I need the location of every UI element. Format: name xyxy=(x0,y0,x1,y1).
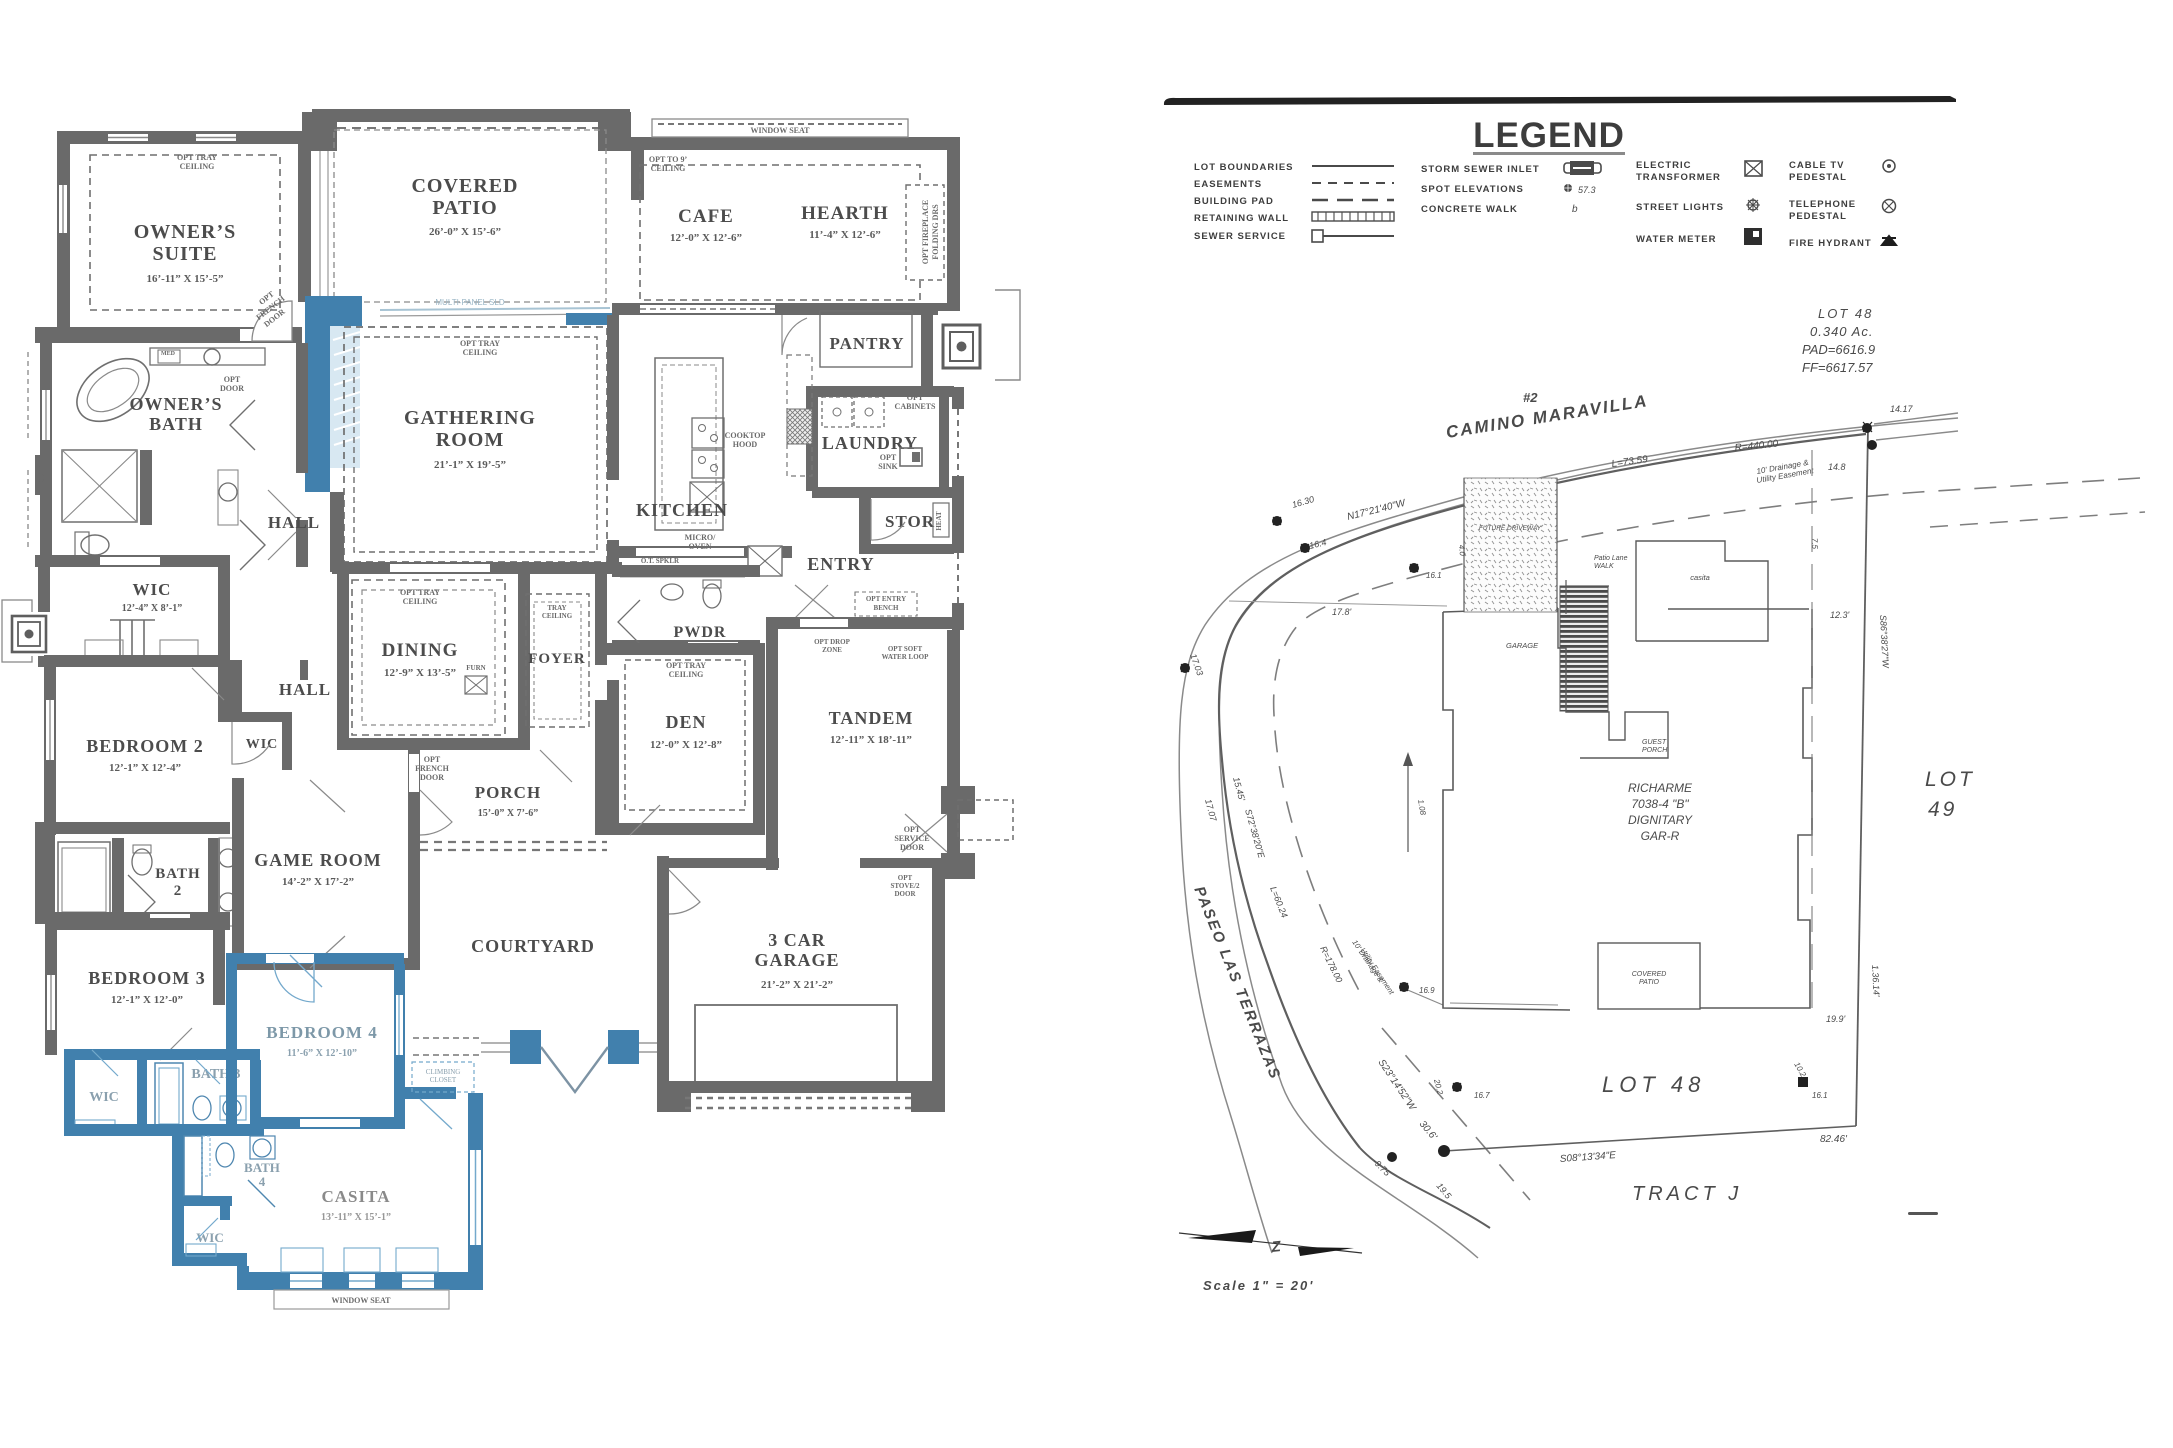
svg-text:BEDROOM 2: BEDROOM 2 xyxy=(86,736,204,756)
svg-text:12’-1” X 12’-4”: 12’-1” X 12’-4” xyxy=(109,762,181,774)
svg-text:CEILING: CEILING xyxy=(542,612,573,620)
svg-text:26’-0” X 15’-6”: 26’-0” X 15’-6” xyxy=(429,226,501,238)
svg-text:12’-4” X 8’-1”: 12’-4” X 8’-1” xyxy=(122,603,183,614)
svg-text:COVERED: COVERED xyxy=(1632,971,1667,978)
svg-text:15’-0” X 7’-6”: 15’-0” X 7’-6” xyxy=(478,808,539,819)
svg-text:OPT TRAY: OPT TRAY xyxy=(400,588,440,597)
svg-text:PWDR: PWDR xyxy=(674,624,727,641)
svg-text:17.8': 17.8' xyxy=(1332,607,1352,617)
svg-text:BEDROOM 4: BEDROOM 4 xyxy=(266,1023,377,1042)
svg-text:WATER LOOP: WATER LOOP xyxy=(882,653,929,661)
svg-text:CAMINO MARAVILLA: CAMINO MARAVILLA xyxy=(1445,391,1650,442)
svg-text:FIRE HYDRANT: FIRE HYDRANT xyxy=(1789,238,1872,249)
svg-text:21’-2” X 21’-2”: 21’-2” X 21’-2” xyxy=(761,979,833,991)
svg-text:Patio Lane: Patio Lane xyxy=(1594,555,1628,562)
svg-text:EASEMENTS: EASEMENTS xyxy=(1194,179,1262,190)
svg-text:DOOR: DOOR xyxy=(900,843,924,852)
svg-text:CAFE: CAFE xyxy=(678,206,734,227)
svg-text:OPT: OPT xyxy=(224,375,241,384)
svg-text:12’-1” X 12’-0”: 12’-1” X 12’-0” xyxy=(111,994,183,1006)
svg-text:PORCH: PORCH xyxy=(475,783,541,802)
svg-text:OWNER’S: OWNER’S xyxy=(134,221,237,243)
svg-text:CABLE TV: CABLE TV xyxy=(1789,160,1845,171)
svg-text:GARAGE: GARAGE xyxy=(754,950,839,970)
svg-text:17.03: 17.03 xyxy=(1188,652,1205,677)
svg-text:COOKTOP: COOKTOP xyxy=(725,431,766,440)
svg-text:HEARTH: HEARTH xyxy=(801,203,889,224)
svg-text:TRANSFORMER: TRANSFORMER xyxy=(1636,172,1721,183)
svg-text:FF=6617.57: FF=6617.57 xyxy=(1802,360,1873,375)
svg-text:COURTYARD: COURTYARD xyxy=(471,936,595,956)
svg-text:TANDEM: TANDEM xyxy=(829,708,914,728)
svg-text:SEAT: SEAT xyxy=(38,466,46,484)
svg-text:13’-11” X 15’-1”: 13’-11” X 15’-1” xyxy=(321,1212,391,1223)
svg-text:GARAGE: GARAGE xyxy=(1506,641,1539,650)
svg-text:R=440.00: R=440.00 xyxy=(1734,438,1779,454)
svg-text:FUTURE DRIVEWAY: FUTURE DRIVEWAY xyxy=(1479,525,1542,532)
svg-text:O.T. SPKLR: O.T. SPKLR xyxy=(641,557,680,565)
svg-text:LOT 48: LOT 48 xyxy=(1818,306,1873,321)
svg-text:CONCRETE WALK: CONCRETE WALK xyxy=(1421,204,1518,215)
svg-text:PORCH: PORCH xyxy=(1642,747,1668,754)
svg-text:BEDROOM 3: BEDROOM 3 xyxy=(88,968,206,988)
svg-text:N17°21'40"W: N17°21'40"W xyxy=(1346,497,1408,522)
svg-text:CASITA: CASITA xyxy=(322,1187,391,1206)
svg-text:DIGNITARY: DIGNITARY xyxy=(1628,813,1693,827)
svg-text:STREET LIGHTS: STREET LIGHTS xyxy=(1636,202,1724,213)
svg-text:WIC: WIC xyxy=(133,580,172,599)
svg-text:CEILING: CEILING xyxy=(651,164,686,173)
svg-text:BATH: BATH xyxy=(149,414,203,434)
svg-text:21’-1” X 19’-5”: 21’-1” X 19’-5” xyxy=(434,459,506,471)
svg-text:STOR: STOR xyxy=(885,512,935,531)
svg-text:GAR-R: GAR-R xyxy=(1641,829,1680,843)
svg-text:OPT SOFT: OPT SOFT xyxy=(888,645,923,653)
svg-text:Utility Easement: Utility Easement xyxy=(1358,946,1396,997)
svg-text:Z: Z xyxy=(1270,1238,1283,1256)
svg-text:19.9': 19.9' xyxy=(1826,1014,1846,1024)
svg-text:S72°38'20"E: S72°38'20"E xyxy=(1243,808,1267,860)
svg-text:15.45': 15.45' xyxy=(1231,776,1247,802)
svg-text:12’-0” X 12’-8”: 12’-0” X 12’-8” xyxy=(650,739,722,751)
svg-text:GATHERING: GATHERING xyxy=(404,407,536,429)
svg-text:CEILING: CEILING xyxy=(463,348,498,357)
svg-text:SINK: SINK xyxy=(878,462,898,471)
svg-text:BATH: BATH xyxy=(155,866,200,882)
svg-text:MULTI-PANEL SLD: MULTI-PANEL SLD xyxy=(435,298,504,307)
svg-text:OPT TRAY: OPT TRAY xyxy=(460,339,500,348)
svg-text:WIC: WIC xyxy=(246,737,279,752)
svg-text:16.30: 16.30 xyxy=(1291,494,1315,510)
svg-text:1.08: 1.08 xyxy=(1416,799,1428,816)
svg-text:7038-4 "B": 7038-4 "B" xyxy=(1631,797,1689,811)
svg-text:12’-11” X 18’-11”: 12’-11” X 18’-11” xyxy=(830,734,912,746)
svg-text:SERVICE: SERVICE xyxy=(894,834,929,843)
svg-text:GUEST: GUEST xyxy=(1642,739,1667,746)
svg-text:SEWER SERVICE: SEWER SERVICE xyxy=(1194,231,1286,242)
svg-text:16.4: 16.4 xyxy=(1308,537,1327,551)
svg-text:DOOR: DOOR xyxy=(220,384,244,393)
svg-text:S23°14'52"W: S23°14'52"W xyxy=(1376,1058,1419,1114)
svg-text:S86°38'27"W: S86°38'27"W xyxy=(1878,615,1891,670)
svg-text:OPT: OPT xyxy=(880,453,897,462)
svg-text:OPT TRAY: OPT TRAY xyxy=(666,661,706,670)
svg-text:CEILING: CEILING xyxy=(403,597,438,606)
svg-text:OPT DROP: OPT DROP xyxy=(814,638,851,646)
svg-text:BUILDING PAD: BUILDING PAD xyxy=(1194,196,1274,207)
svg-text:WIC: WIC xyxy=(196,1230,223,1245)
svg-text:OVEN: OVEN xyxy=(688,542,711,551)
svg-text:RETAINING WALL: RETAINING WALL xyxy=(1194,213,1289,224)
svg-text:0.340 Ac.: 0.340 Ac. xyxy=(1810,324,1873,339)
svg-text:20.2: 20.2 xyxy=(1432,1077,1445,1096)
svg-text:CEILING: CEILING xyxy=(669,670,704,679)
svg-text:CEILING: CEILING xyxy=(180,162,215,171)
svg-text:LOT BOUNDARIES: LOT BOUNDARIES xyxy=(1194,162,1294,173)
svg-text:2: 2 xyxy=(174,883,183,899)
svg-text:TRAY: TRAY xyxy=(547,604,566,612)
svg-text:WINDOW SEAT: WINDOW SEAT xyxy=(331,1296,391,1305)
svg-text:ENTRY: ENTRY xyxy=(807,554,874,574)
svg-text:WATER METER: WATER METER xyxy=(1636,234,1717,245)
svg-text:HEAT: HEAT xyxy=(935,511,943,531)
svg-text:TRACT J: TRACT J xyxy=(1632,1183,1742,1205)
svg-text:PATIO: PATIO xyxy=(432,197,497,219)
svg-text:CLOSET: CLOSET xyxy=(430,1076,457,1084)
svg-text:16.7: 16.7 xyxy=(1474,1091,1490,1100)
svg-text:SPOT ELEVATIONS: SPOT ELEVATIONS xyxy=(1421,184,1524,195)
svg-text:49: 49 xyxy=(1928,798,1957,821)
svg-text:HALL: HALL xyxy=(279,680,331,699)
svg-text:OPT ENTRY: OPT ENTRY xyxy=(866,595,906,603)
svg-text:FOLDING DRS: FOLDING DRS xyxy=(931,204,940,260)
svg-text:OPT: OPT xyxy=(424,755,441,764)
svg-text:OPT TRAY: OPT TRAY xyxy=(177,153,217,162)
svg-text:ZONE: ZONE xyxy=(822,646,842,654)
svg-text:#2: #2 xyxy=(1523,390,1538,405)
svg-text:KITCHEN: KITCHEN xyxy=(636,500,728,520)
svg-text:R=178.00: R=178.00 xyxy=(1318,944,1344,984)
svg-text:WALK: WALK xyxy=(1594,563,1614,570)
svg-text:14’-2” X 17’-2”: 14’-2” X 17’-2” xyxy=(282,876,354,888)
svg-text:HOOD: HOOD xyxy=(733,440,758,449)
svg-text:OPT: OPT xyxy=(898,874,913,882)
svg-text:4: 4 xyxy=(259,1174,266,1189)
svg-text:PEDESTAL: PEDESTAL xyxy=(1789,172,1847,183)
svg-text:DOOR: DOOR xyxy=(420,773,444,782)
svg-text:FOYER: FOYER xyxy=(528,651,586,667)
svg-text:MICRO/: MICRO/ xyxy=(685,533,716,542)
svg-text:b: b xyxy=(1572,204,1578,215)
svg-text:10.2: 10.2 xyxy=(1792,1061,1808,1079)
svg-text:ROOM: ROOM xyxy=(436,429,504,451)
svg-text:TELEPHONE: TELEPHONE xyxy=(1789,199,1856,210)
svg-text:GAME ROOM: GAME ROOM xyxy=(254,850,382,870)
svg-text:11’-4” X 12’-6”: 11’-4” X 12’-6” xyxy=(809,229,881,241)
svg-text:CABINETS: CABINETS xyxy=(895,402,936,411)
svg-text:COVERED: COVERED xyxy=(411,175,518,197)
svg-text:30.6': 30.6' xyxy=(1417,1119,1440,1143)
svg-text:7.5: 7.5 xyxy=(1810,538,1819,550)
svg-text:FRENCH: FRENCH xyxy=(415,764,450,773)
svg-text:OPT: OPT xyxy=(904,825,921,834)
svg-text:16.9: 16.9 xyxy=(1419,986,1435,995)
svg-text:Scale 1" = 20': Scale 1" = 20' xyxy=(1203,1278,1314,1293)
svg-text:DEN: DEN xyxy=(665,712,706,732)
svg-text:WIC: WIC xyxy=(89,1090,119,1105)
svg-text:3 CAR: 3 CAR xyxy=(768,930,826,950)
svg-text:BENCH: BENCH xyxy=(874,604,899,612)
svg-text:LOT: LOT xyxy=(1925,768,1975,791)
svg-text:OPT TO 9’: OPT TO 9’ xyxy=(649,155,688,164)
svg-text:LOT 48: LOT 48 xyxy=(1602,1072,1705,1097)
svg-text:OWNER’S: OWNER’S xyxy=(129,394,222,414)
svg-text:FURN: FURN xyxy=(466,664,485,672)
svg-text:ELECTRIC: ELECTRIC xyxy=(1636,160,1692,171)
svg-text:OPT: OPT xyxy=(907,393,924,402)
svg-text:12.3': 12.3' xyxy=(1830,610,1850,620)
svg-text:14.8: 14.8 xyxy=(1828,462,1846,472)
svg-text:casita: casita xyxy=(1690,573,1710,582)
svg-text:RICHARME: RICHARME xyxy=(1628,781,1693,795)
svg-text:PATIO: PATIO xyxy=(1639,979,1660,986)
svg-text:STOVE/2: STOVE/2 xyxy=(890,882,920,890)
svg-text:16.1: 16.1 xyxy=(1812,1091,1828,1100)
svg-text:PEDESTAL: PEDESTAL xyxy=(1789,211,1847,222)
svg-text:82.46': 82.46' xyxy=(1820,1134,1848,1145)
svg-text:PAD=6616.9: PAD=6616.9 xyxy=(1802,342,1875,357)
svg-text:LEGEND: LEGEND xyxy=(1473,116,1625,155)
svg-text:11’-6” X 12’-10”: 11’-6” X 12’-10” xyxy=(287,1048,357,1059)
svg-text:SUITE: SUITE xyxy=(152,243,217,265)
svg-text:16’-11” X 15’-5”: 16’-11” X 15’-5” xyxy=(147,273,224,285)
svg-text:LAUNDRY: LAUNDRY xyxy=(822,433,918,453)
svg-text:WINDOW SEAT: WINDOW SEAT xyxy=(750,126,810,135)
svg-text:BATH: BATH xyxy=(244,1160,280,1175)
svg-text:L=60.24: L=60.24 xyxy=(1268,885,1290,919)
svg-text:4.0: 4.0 xyxy=(1457,544,1467,556)
svg-text:PANTRY: PANTRY xyxy=(830,334,905,353)
svg-text:MED: MED xyxy=(161,351,176,357)
svg-text:CLIMBING: CLIMBING xyxy=(426,1068,461,1076)
svg-text:16.1: 16.1 xyxy=(1426,571,1442,580)
svg-text:OPT FIREPLACE: OPT FIREPLACE xyxy=(921,200,930,265)
svg-text:57.3: 57.3 xyxy=(1578,185,1596,195)
svg-text:1.36.14': 1.36.14' xyxy=(1870,965,1882,998)
svg-text:DOOR: DOOR xyxy=(895,890,917,898)
svg-text:12’-0” X 12’-6”: 12’-0” X 12’-6” xyxy=(670,232,742,244)
svg-text:STORM SEWER INLET: STORM SEWER INLET xyxy=(1421,164,1540,175)
svg-text:12’-9” X 13’-5”: 12’-9” X 13’-5” xyxy=(384,667,456,679)
svg-text:14.17: 14.17 xyxy=(1890,404,1914,414)
svg-text:S08°13'34"E: S08°13'34"E xyxy=(1559,1150,1616,1165)
svg-text:17.07: 17.07 xyxy=(1203,798,1219,823)
svg-text:DINING: DINING xyxy=(382,640,459,661)
